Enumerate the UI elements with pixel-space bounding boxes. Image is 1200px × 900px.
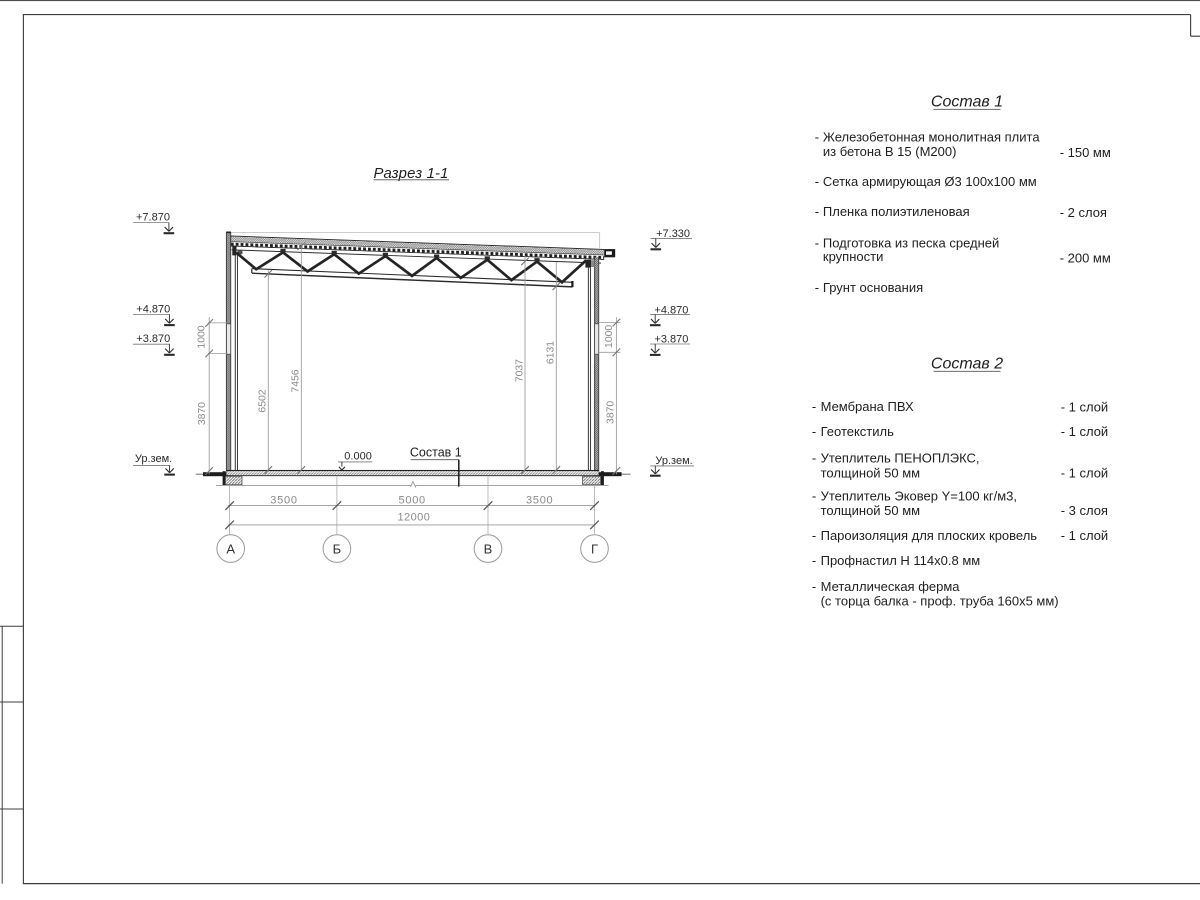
svg-text:6502: 6502 bbox=[258, 389, 269, 412]
svg-text:- 3 слоя: - 3 слоя bbox=[1061, 503, 1108, 518]
svg-text:- 200 мм: - 200 мм bbox=[1060, 251, 1111, 266]
svg-text:-: - bbox=[812, 579, 816, 594]
svg-text:- 2 слоя: - 2 слоя bbox=[1060, 205, 1107, 220]
svg-text:1000: 1000 bbox=[197, 325, 208, 348]
svg-text:крупности: крупности bbox=[823, 249, 883, 264]
svg-text:Утеплитель Эковер Y=100 кг/м3,: Утеплитель Эковер Y=100 кг/м3, bbox=[821, 489, 1017, 504]
svg-text:Г: Г bbox=[591, 541, 598, 556]
svg-text:Утеплитель ПЕНОПЛЭКС,: Утеплитель ПЕНОПЛЭКС, bbox=[821, 451, 980, 466]
svg-text:- 150 мм: - 150 мм bbox=[1060, 145, 1111, 160]
svg-text:- 1 слой: - 1 слой bbox=[1061, 528, 1109, 543]
svg-text:А: А bbox=[226, 541, 235, 556]
svg-text:3500: 3500 bbox=[526, 494, 553, 506]
svg-text:3870: 3870 bbox=[606, 401, 617, 424]
svg-text:-: - bbox=[815, 235, 819, 250]
svg-text:-: - bbox=[812, 424, 816, 439]
svg-text:1000: 1000 bbox=[604, 325, 615, 348]
svg-text:Ур.зем.: Ур.зем. bbox=[655, 455, 692, 467]
svg-text:-: - bbox=[815, 174, 819, 189]
svg-text:-: - bbox=[815, 280, 819, 295]
svg-text:12000: 12000 bbox=[397, 511, 430, 523]
svg-text:Профнастил Н 114х0.8 мм: Профнастил Н 114х0.8 мм bbox=[821, 553, 981, 568]
svg-text:Состав 2: Состав 2 bbox=[931, 355, 1003, 372]
svg-text:5000: 5000 bbox=[398, 494, 425, 506]
svg-text:толщиной 50 мм: толщиной 50 мм bbox=[821, 465, 921, 480]
svg-text:0.000: 0.000 bbox=[344, 450, 372, 462]
svg-text:Пароизоляция для плоских крове: Пароизоляция для плоских кровель bbox=[821, 528, 1038, 543]
svg-text:Железобетонная монолитная пли: Железобетонная монолитная плита bbox=[823, 129, 1040, 144]
svg-text:-: - bbox=[812, 528, 816, 543]
svg-text:Металлическая ферма: Металлическая ферма bbox=[821, 579, 961, 594]
svg-text:-: - bbox=[812, 399, 816, 414]
svg-text:6131: 6131 bbox=[546, 341, 557, 364]
svg-text:из бетона В 15 (М200): из бетона В 15 (М200) bbox=[823, 144, 957, 159]
svg-text:Состав 1: Состав 1 bbox=[410, 445, 462, 459]
svg-text:-: - bbox=[812, 553, 816, 568]
svg-text:7037: 7037 bbox=[514, 359, 525, 382]
svg-text:3500: 3500 bbox=[270, 494, 297, 506]
svg-text:Пленка полиэтиленовая: Пленка полиэтиленовая bbox=[823, 204, 970, 219]
svg-text:- 1 слой: - 1 слой bbox=[1061, 424, 1109, 439]
svg-text:- 1 слой: - 1 слой bbox=[1061, 399, 1109, 414]
svg-text:(с торца балка - проф. труба 1: (с торца балка - проф. труба 160х5 мм) bbox=[821, 593, 1059, 608]
svg-text:-: - bbox=[812, 451, 816, 466]
svg-text:-: - bbox=[812, 489, 816, 504]
svg-text:Сетка армирующая Ø3 100х100 мм: Сетка армирующая Ø3 100х100 мм bbox=[823, 174, 1037, 189]
svg-text:- 1 слой: - 1 слой bbox=[1061, 465, 1109, 480]
svg-text:7456: 7456 bbox=[291, 369, 302, 392]
svg-text:Мембрана ПВХ: Мембрана ПВХ bbox=[821, 399, 914, 414]
svg-text:толщиной 50 мм: толщиной 50 мм bbox=[821, 503, 921, 518]
svg-text:Б: Б bbox=[333, 541, 342, 556]
svg-text:В: В bbox=[484, 541, 493, 556]
svg-text:+4.870: +4.870 bbox=[136, 304, 170, 316]
svg-text:+3.870: +3.870 bbox=[136, 333, 170, 345]
svg-text:Грунт основания: Грунт основания bbox=[823, 280, 923, 295]
svg-text:+7.870: +7.870 bbox=[136, 211, 170, 223]
svg-text:Ур.зем.: Ур.зем. bbox=[135, 453, 172, 465]
svg-text:Геотекстиль: Геотекстиль bbox=[821, 424, 895, 439]
svg-text:-: - bbox=[815, 204, 819, 219]
svg-text:-: - bbox=[815, 129, 819, 144]
svg-text:Состав 1: Состав 1 bbox=[931, 93, 1003, 110]
svg-text:3870: 3870 bbox=[197, 402, 208, 425]
